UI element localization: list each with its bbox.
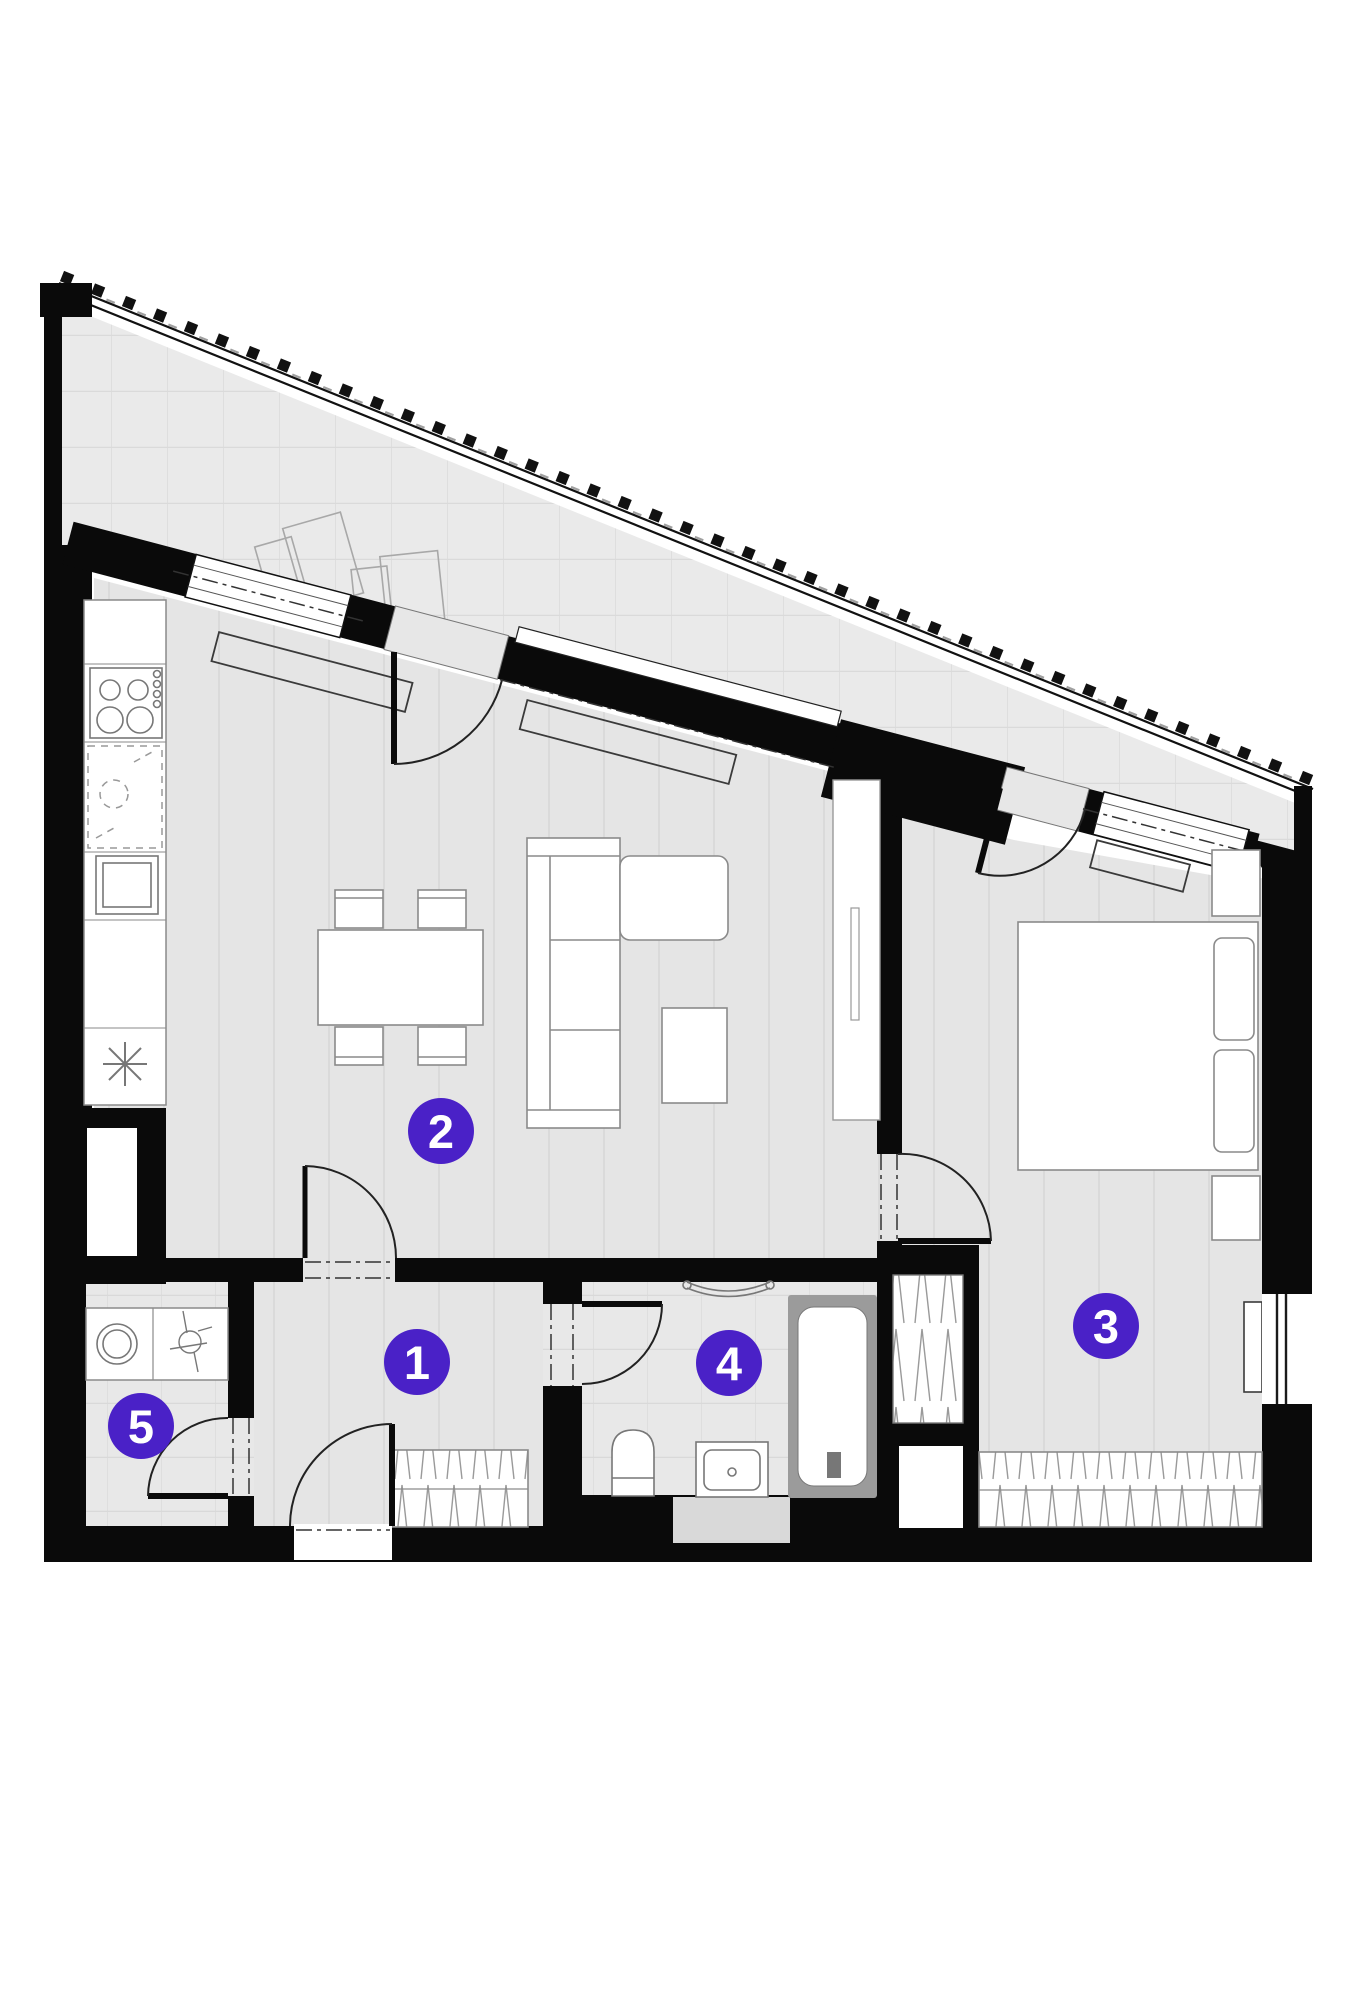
bathroom-sink-icon: [696, 1442, 768, 1497]
room-badge-1: 1: [384, 1329, 450, 1395]
room-badge-label: 3: [1093, 1300, 1119, 1353]
toilet-icon: [612, 1430, 654, 1496]
asterisk-icon: [103, 1042, 147, 1086]
shaft-left-white: [87, 1128, 137, 1256]
coffee-table: [662, 1008, 727, 1103]
floor-plan-svg: 1 2 3 4 5: [0, 0, 1352, 2013]
pillow: [1214, 1050, 1254, 1152]
room-badge-4: 4: [696, 1330, 762, 1396]
room-badge-2: 2: [408, 1098, 474, 1164]
dining-table: [318, 930, 483, 1025]
dining-chair: [418, 1027, 466, 1065]
room-badge-label: 1: [404, 1336, 430, 1389]
hallway-wardrobe: [392, 1450, 528, 1527]
bed: [1018, 922, 1258, 1170]
room-badge-5: 5: [108, 1393, 174, 1459]
kitchen-counter: [84, 600, 166, 1105]
room-badge-label: 5: [128, 1400, 154, 1453]
wall-living-bedroom: [877, 788, 902, 1154]
laundry-counter: [86, 1308, 228, 1380]
bathtub: [788, 1295, 877, 1498]
bedroom-side-window: [1262, 1294, 1312, 1404]
pillow: [1214, 938, 1254, 1040]
nightstand: [1212, 1176, 1260, 1240]
dining-chair: [335, 1027, 383, 1065]
room-badge-label: 4: [716, 1337, 742, 1390]
wall-bath-post: [543, 1282, 582, 1304]
sofa-chaise: [620, 856, 728, 940]
wall-hall-laundry-lower: [228, 1496, 254, 1530]
duct-shaft-white: [899, 1446, 963, 1528]
bedroom-wardrobe: [979, 1452, 1262, 1527]
wall-hall-laundry-upper: [228, 1282, 254, 1420]
duct-shaft-hatched: [893, 1275, 963, 1423]
floor-plan-page: 1 2 3 4 5: [0, 0, 1352, 2013]
bath-niche-gray: [673, 1497, 790, 1543]
dining-chair: [335, 890, 383, 928]
tub-drain: [827, 1452, 841, 1478]
wall-hall-top: [164, 1258, 880, 1282]
room-badge-label: 2: [428, 1105, 454, 1158]
dining-chair: [418, 890, 466, 928]
wall-bath-left: [543, 1386, 582, 1498]
radiator: [1244, 1302, 1262, 1392]
wall-laundry-left: [44, 1282, 86, 1560]
wall-balcony-left: [44, 285, 62, 549]
wall-balcony-right-post: [1294, 786, 1312, 862]
nightstand: [1212, 850, 1260, 916]
room-badge-3: 3: [1073, 1293, 1139, 1359]
tv-cabinet: [833, 780, 880, 1120]
